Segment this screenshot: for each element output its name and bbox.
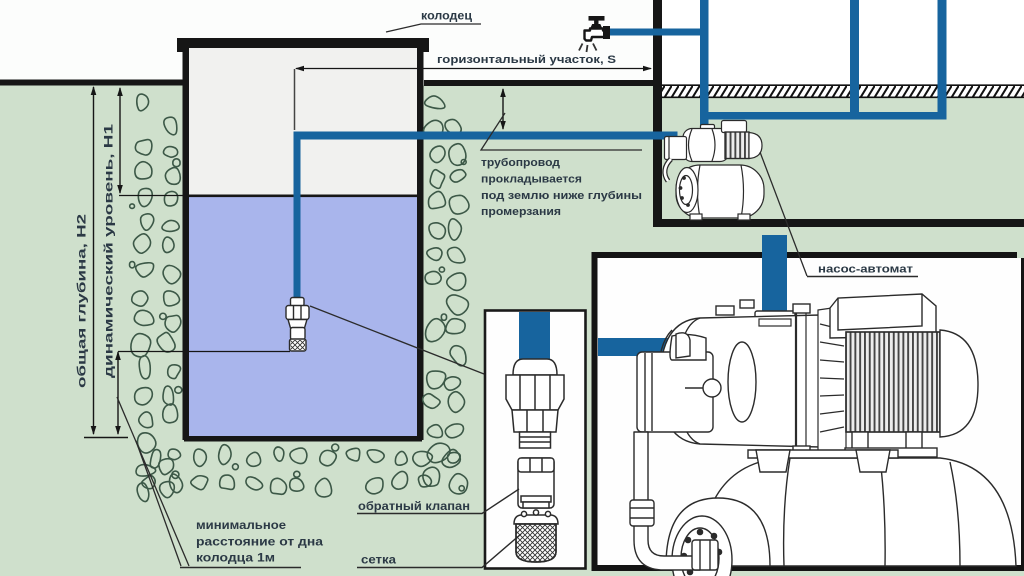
svg-text:под землю ниже глубины: под землю ниже глубины bbox=[481, 190, 642, 202]
svg-text:динамический уровень, Н1: динамический уровень, Н1 bbox=[104, 123, 116, 378]
svg-text:колодец: колодец bbox=[421, 11, 472, 23]
svg-text:расстояние от дна: расстояние от дна bbox=[196, 537, 324, 549]
svg-text:сетка: сетка bbox=[361, 555, 397, 567]
svg-text:насос-автомат: насос-автомат bbox=[818, 264, 914, 276]
svg-text:промерзания: промерзания bbox=[481, 206, 561, 218]
svg-text:общая глубина, Н2: общая глубина, Н2 bbox=[77, 214, 89, 388]
svg-text:обратный клапан: обратный клапан bbox=[358, 501, 470, 513]
svg-text:минимальное: минимальное bbox=[196, 520, 286, 532]
svg-text:колодца 1м: колодца 1м bbox=[196, 553, 275, 565]
svg-text:трубопровод: трубопровод bbox=[481, 157, 560, 169]
svg-text:прокладывается: прокладывается bbox=[481, 174, 582, 186]
svg-text:горизонтальный участок, S: горизонтальный участок, S bbox=[437, 54, 616, 66]
